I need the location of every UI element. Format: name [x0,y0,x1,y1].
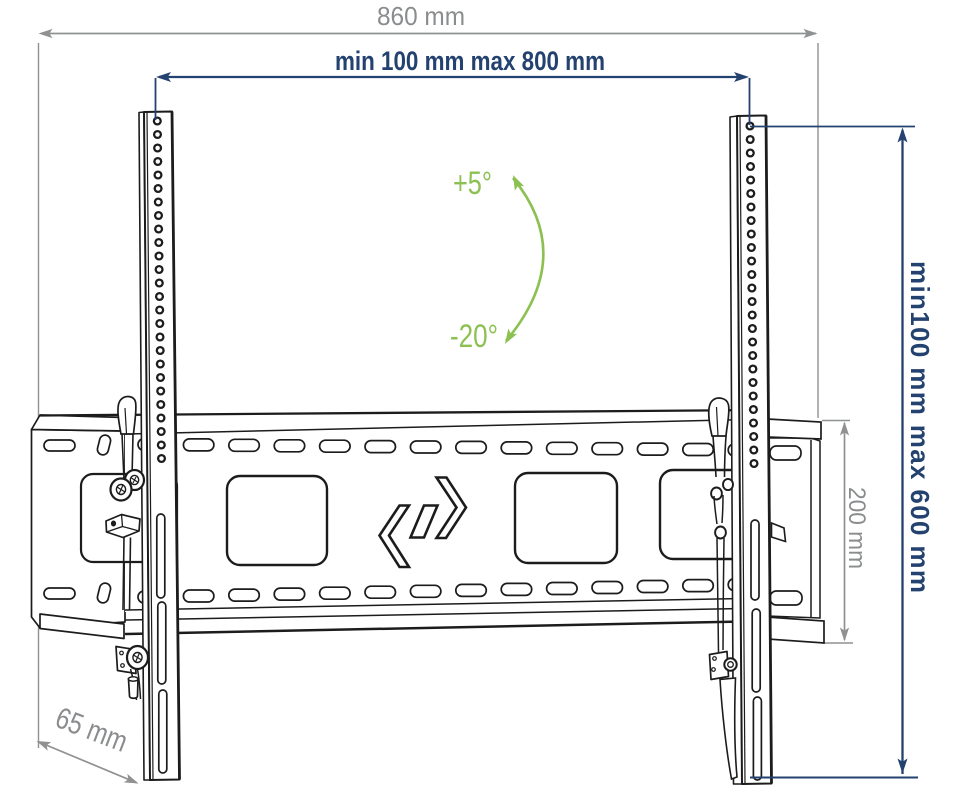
svg-text:+5°: +5° [453,165,492,201]
svg-text:min100 mm max 600 mm: min100 mm max 600 mm [905,261,935,593]
svg-text:200 mm: 200 mm [843,487,870,569]
svg-text:860 mm: 860 mm [377,1,465,31]
svg-text:-20°: -20° [450,318,498,354]
svg-text:min 100 mm max 800 mm: min 100 mm max 800 mm [335,46,605,76]
